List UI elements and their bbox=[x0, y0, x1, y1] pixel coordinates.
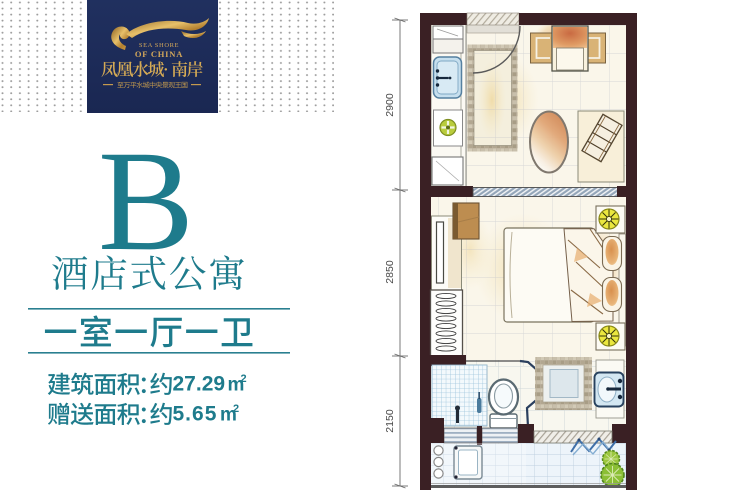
svg-text:2: 2 bbox=[241, 373, 247, 385]
svg-text:2900: 2900 bbox=[384, 93, 396, 117]
svg-text:B: B bbox=[98, 122, 194, 281]
svg-text:2850: 2850 bbox=[384, 260, 396, 284]
svg-text:2150: 2150 bbox=[384, 409, 396, 433]
svg-text:5.65: 5.65 bbox=[173, 403, 218, 426]
svg-text:OF CHINA: OF CHINA bbox=[135, 49, 183, 59]
svg-text:2: 2 bbox=[233, 403, 239, 415]
svg-text:27.29: 27.29 bbox=[173, 373, 226, 396]
svg-text:SEA SHORE: SEA SHORE bbox=[139, 42, 179, 49]
